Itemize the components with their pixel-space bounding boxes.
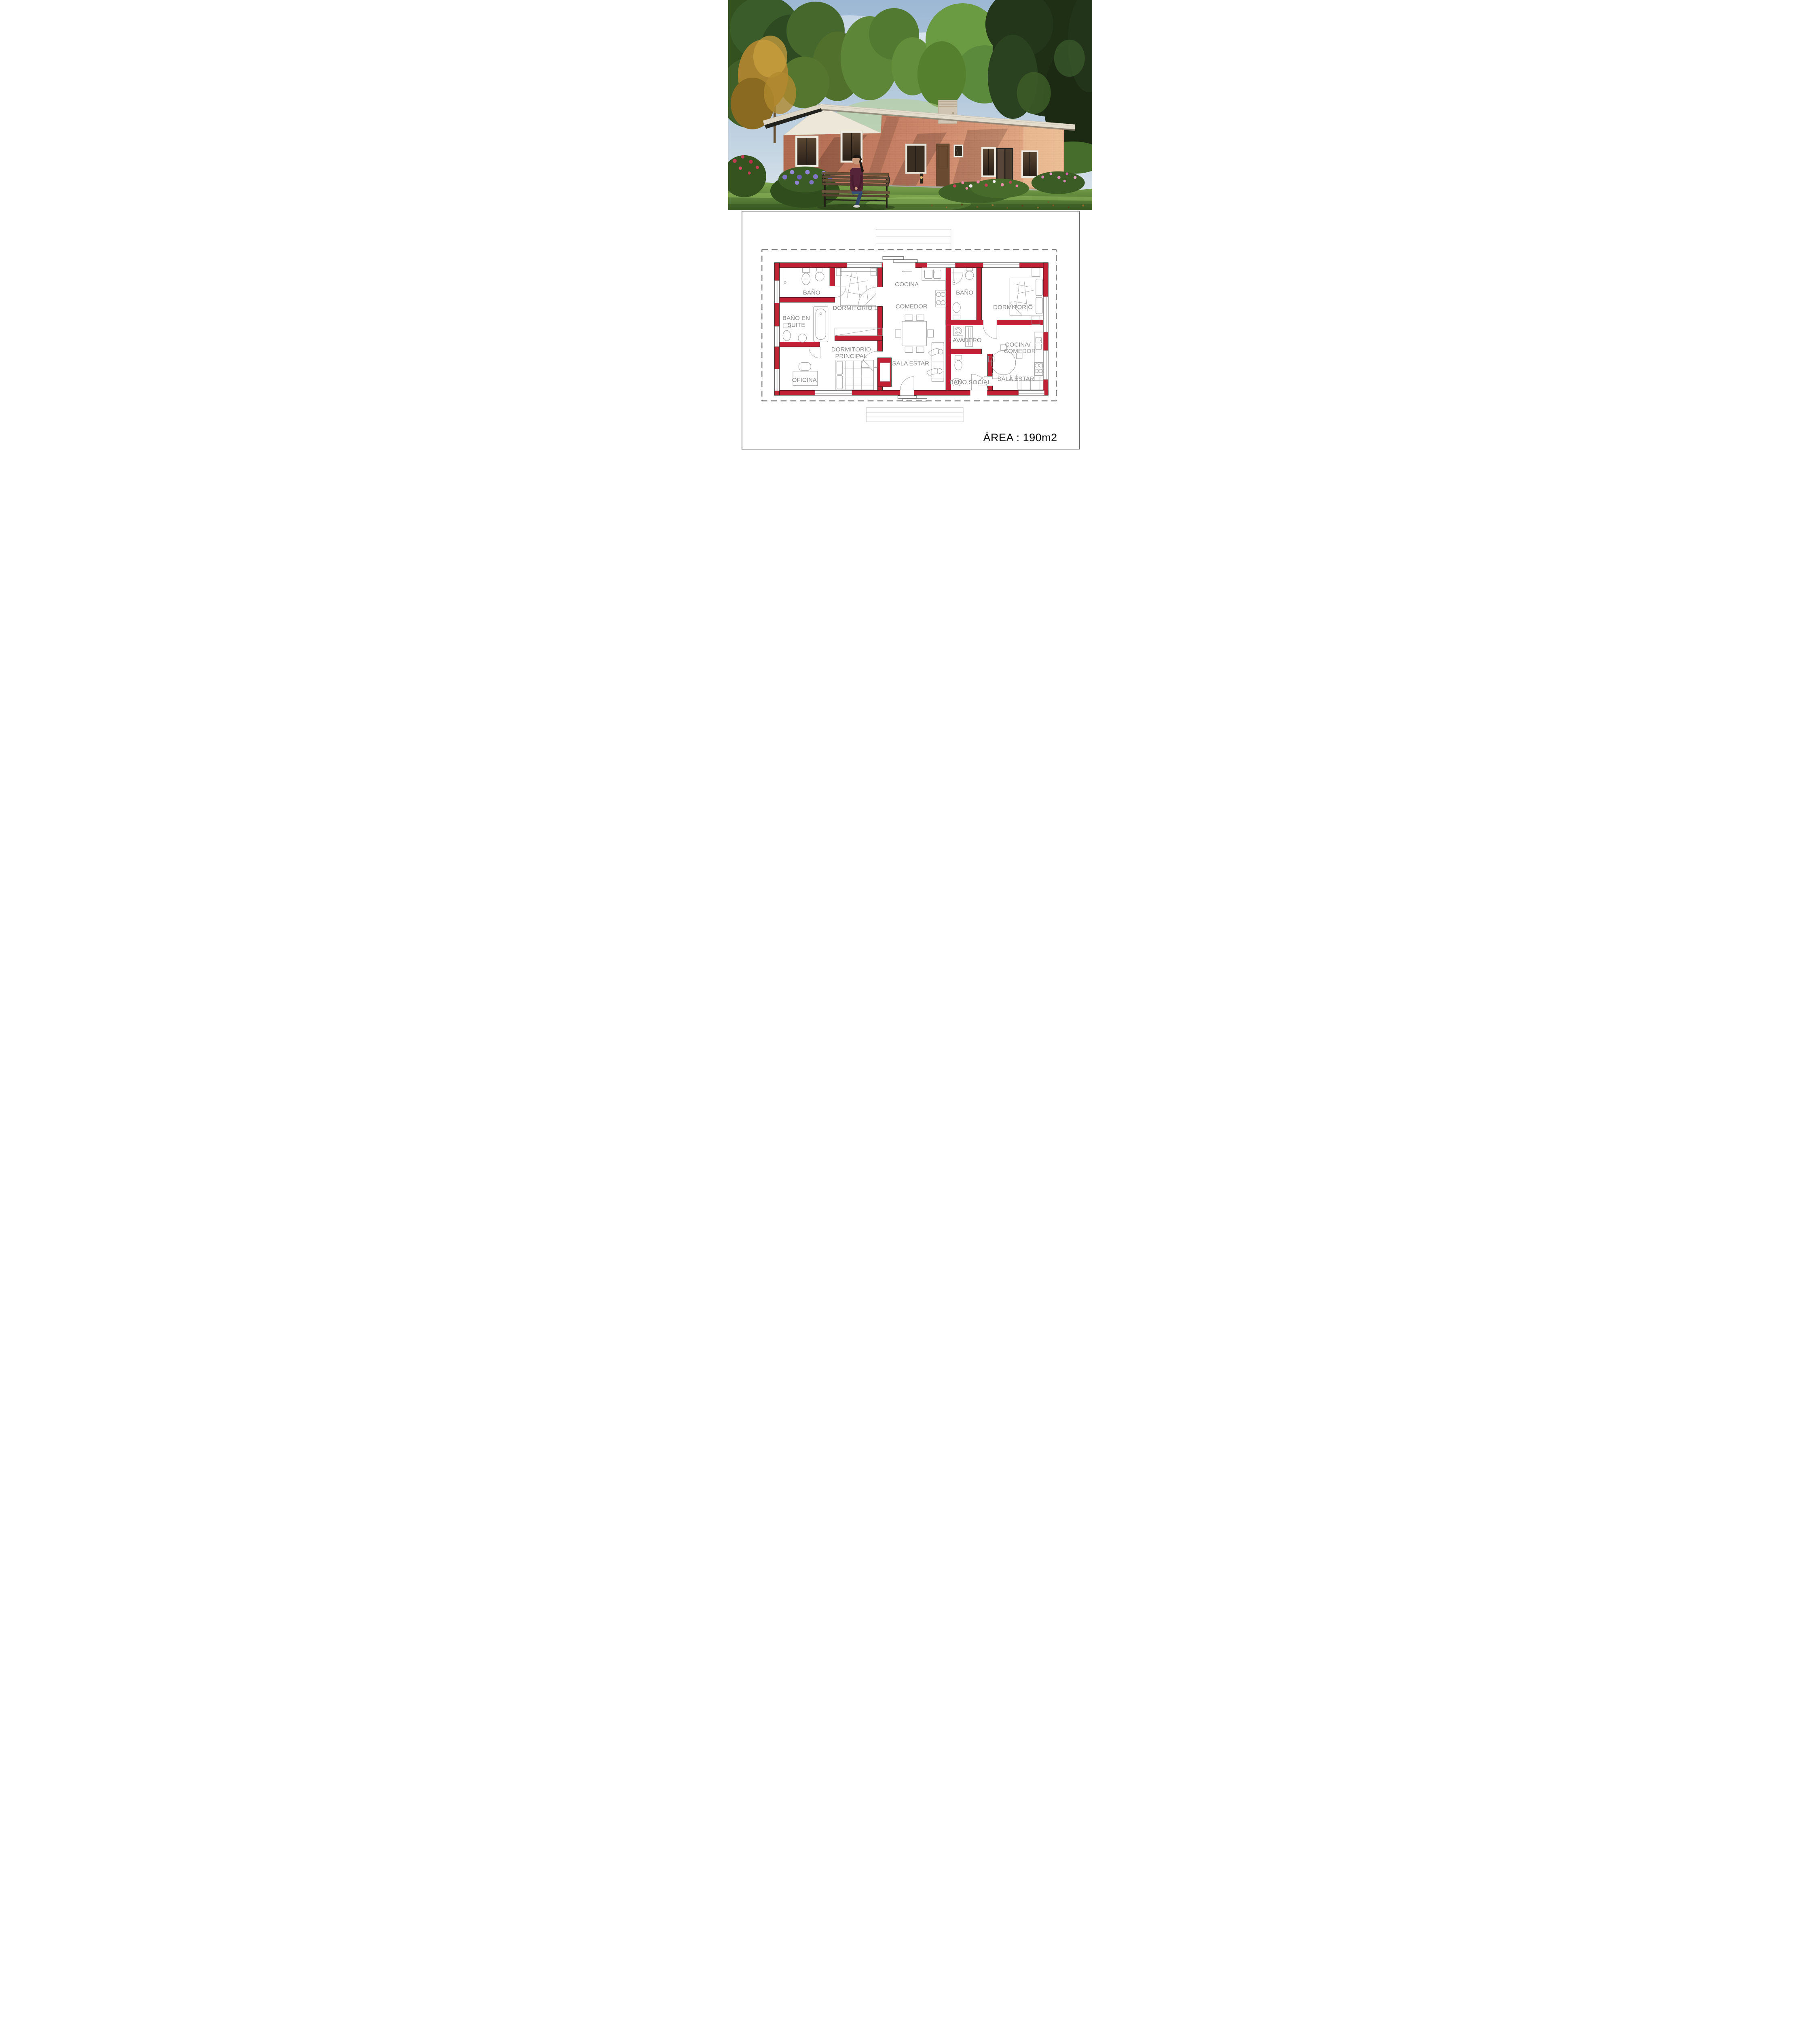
closet-icon <box>835 328 882 336</box>
kitchen-counter-icon <box>922 268 946 281</box>
room-label-cocina: COCINA <box>895 281 919 288</box>
room-label-bano-1: BAÑO <box>803 290 820 296</box>
shower-icon <box>953 269 955 283</box>
room-label-dorm-principal-1: DORMITORIO <box>831 346 871 353</box>
room-label-dorm-principal-2: PRINCIPAL <box>835 353 867 360</box>
room-label-cocina-comedor-1: COCINA/ <box>1005 341 1031 348</box>
room-label-dormitorio-2: DORMITORIO <box>993 304 1033 311</box>
room-label-cocina-comedor-2: COMEDOR <box>1004 348 1036 355</box>
area-label: ÁREA : 190m2 <box>983 431 1057 444</box>
room-label-dormitorio-1: DORMITORIO 1 <box>833 305 877 312</box>
toilet-icon <box>802 268 810 285</box>
stove-icon <box>936 290 946 307</box>
bed-icon <box>1010 268 1043 325</box>
room-label-sala-estar-1: SALA ESTAR <box>892 360 929 367</box>
room-label-lavadero: LAVADERO <box>949 337 981 344</box>
lantern <box>920 173 923 183</box>
shower-icon <box>784 269 786 284</box>
window <box>795 136 818 167</box>
window <box>905 144 926 174</box>
bed-icon <box>836 268 877 306</box>
flower-bed-right <box>1031 171 1084 194</box>
toilet-icon <box>953 303 960 319</box>
page: BAÑO DORMITORIO 1 BAÑO EN SUITE OFICINA … <box>728 0 1092 455</box>
bathtub-icon <box>814 307 828 342</box>
house-rendering-photo <box>728 0 1092 210</box>
terrace-steps-top <box>876 229 951 250</box>
bed-icon <box>836 360 874 390</box>
sink-icon <box>965 268 974 280</box>
terrace-steps-bottom <box>866 408 963 422</box>
room-label-sala-estar-2: SALA ESTAR <box>997 376 1034 383</box>
room-label-comedor: COMEDOR <box>895 303 927 310</box>
tv-niche <box>880 363 890 382</box>
dining-table-icon <box>895 315 933 353</box>
room-label-bano-en-suite-2: SUITE <box>787 322 805 329</box>
window <box>1021 150 1038 178</box>
kitchen-counter-icon <box>1034 332 1043 381</box>
window <box>981 147 996 177</box>
sink-icon <box>815 268 824 281</box>
sofa-icon <box>927 343 944 382</box>
room-label-bano-2: BAÑO <box>956 290 973 296</box>
sink-icon <box>798 334 807 343</box>
room-label-oficina: OFICINA <box>792 377 817 384</box>
toilet-icon <box>955 355 962 370</box>
floor-plan: BAÑO DORMITORIO 1 BAÑO EN SUITE OFICINA … <box>742 212 1079 449</box>
room-label-bano-social: BAÑO SOCIAL <box>949 379 991 386</box>
plan-sheet: BAÑO DORMITORIO 1 BAÑO EN SUITE OFICINA … <box>742 211 1080 450</box>
small-bath-window <box>953 145 963 157</box>
room-label-bano-en-suite-1: BAÑO EN <box>782 315 810 322</box>
